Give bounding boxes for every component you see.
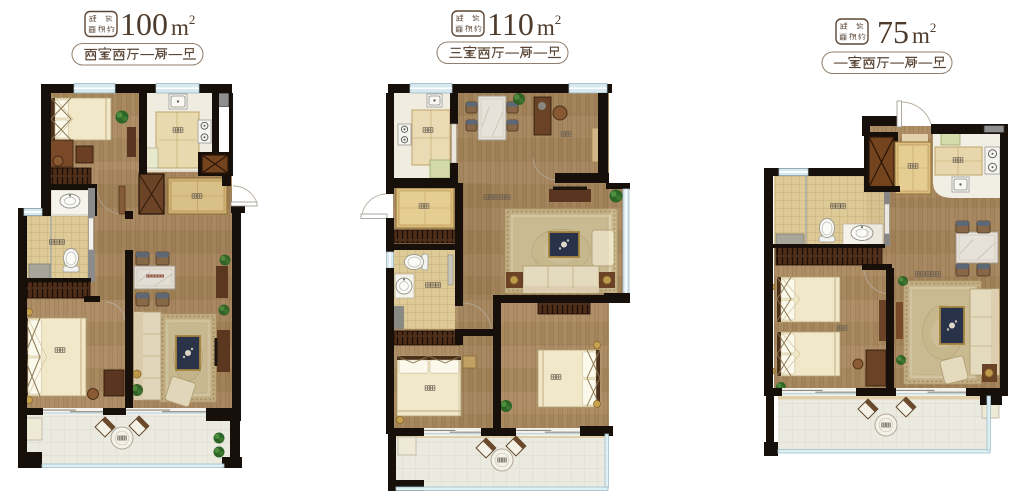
- svg-text:75m2: 75m2: [877, 14, 936, 50]
- svg-text:110m2: 110m2: [487, 6, 561, 42]
- svg-text:100m2: 100m2: [120, 6, 195, 42]
